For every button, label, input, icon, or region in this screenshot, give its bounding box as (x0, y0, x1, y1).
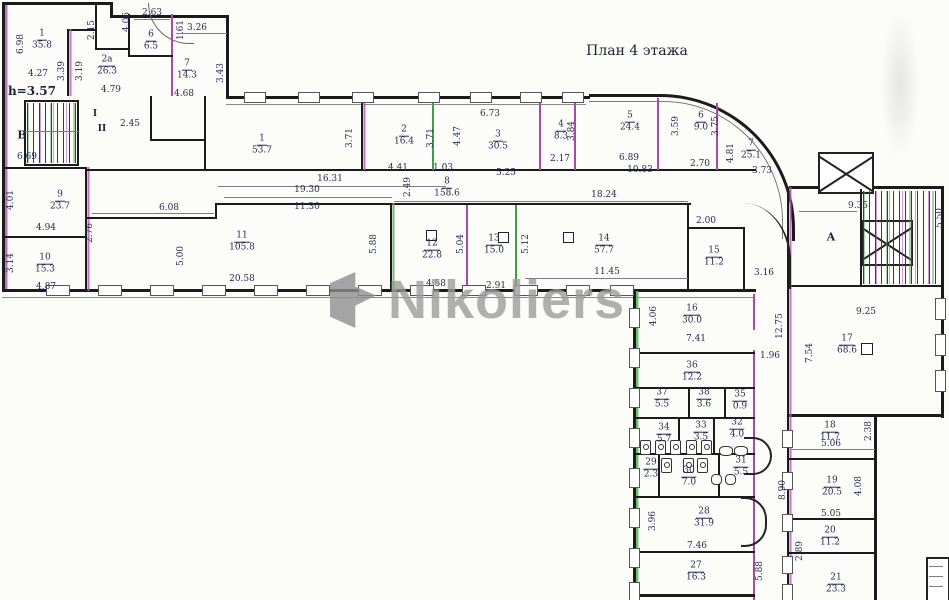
dimension-label: 4.01 (6, 190, 16, 210)
dimension-label: 5.05 (821, 509, 841, 519)
room-label-11: 11105.8 (229, 231, 255, 254)
room-label-18: 1811.7 (820, 421, 840, 444)
room-label-28: 2831.9 (694, 507, 714, 530)
dimension-label: 11.30 (294, 202, 320, 212)
dimension-label: 6.98 (16, 34, 26, 54)
room-label-21: 2123.3 (826, 573, 846, 596)
dimension-label: 4.08 (854, 476, 864, 496)
room-label-7: 714.3 (177, 59, 197, 82)
dimension-label: 5.25 (496, 168, 516, 178)
dimension-label: 5.12 (521, 234, 531, 254)
dimension-label: 3.14 (6, 253, 16, 273)
dimension-label: 1.61 (176, 20, 186, 40)
room-label-6: 66.5 (144, 30, 158, 53)
nikoliers-logo-icon (330, 272, 376, 328)
roman-label: I (93, 109, 97, 119)
dimension-label: 12.75 (775, 313, 785, 339)
room-label-8: 8158.6 (434, 177, 460, 200)
dimension-label: 3.71 (426, 128, 436, 148)
room-label-37: 375.5 (654, 388, 669, 411)
room-label-12: 1222.8 (422, 239, 442, 262)
dimension-label: 18.24 (591, 190, 617, 200)
room-label-27: 2716.3 (686, 561, 706, 584)
room-label-7: 725.1 (741, 139, 761, 162)
dimension-label: 20.58 (229, 274, 255, 284)
dimension-label: 9.35 (848, 201, 868, 211)
room-label-4: 48.3 (554, 120, 568, 143)
dimension-label: 7.41 (686, 334, 706, 344)
dimension-label: 7.46 (687, 541, 707, 551)
room-label-10: 1015.3 (35, 253, 55, 276)
dimension-label: 4.79 (101, 85, 121, 95)
dimension-label: 2.76 (85, 223, 95, 243)
dimension-label: 2.38 (864, 421, 874, 441)
dimension-label: 5.88 (369, 234, 379, 254)
dimension-label: 4.94 (36, 223, 56, 233)
letter-label: А (827, 231, 836, 244)
dimension-label: 5.00 (176, 246, 186, 266)
dimension-label: 5.88 (755, 561, 765, 581)
dimension-label: 1.96 (760, 351, 780, 361)
dimension-label: 2.45 (120, 119, 140, 129)
note-label: h=3.57 (8, 84, 56, 98)
dimension-label: 2.15 (87, 20, 97, 40)
room-label-31: 315.5 (733, 456, 748, 479)
room-label-2: 216.4 (394, 125, 414, 148)
room-label-2а: 2а26.3 (97, 55, 117, 78)
dimension-label: 5.04 (456, 234, 466, 254)
dimension-label: 2.89 (795, 541, 805, 561)
dimension-label: 3.16 (754, 268, 774, 278)
letter-label: В (17, 129, 26, 142)
dimension-label: 4.06 (122, 12, 132, 32)
dimension-label: 4.47 (453, 126, 463, 146)
dimension-label: 19.30 (294, 185, 320, 195)
dimension-label: 4.41 (388, 163, 408, 173)
room-label-35: 350.9 (732, 390, 747, 413)
dimension-label: 16.31 (317, 174, 343, 184)
room-label-30: 307.0 (681, 466, 696, 489)
dimension-label: 2.63 (142, 8, 162, 18)
dimension-label: 2.00 (696, 216, 716, 226)
room-label-17: 1768.6 (837, 334, 857, 357)
dimension-label: 4.81 (726, 143, 736, 163)
dimension-label: 4.87 (36, 282, 56, 292)
dimension-label: 7.54 (805, 343, 815, 363)
dimension-label: 8.90 (778, 480, 788, 500)
dimension-label: 3.19 (75, 61, 85, 81)
dimension-label: 3.71 (345, 128, 355, 148)
room-label-20: 2011.2 (820, 526, 840, 549)
dimension-label: 2.17 (550, 154, 570, 164)
room-label-14: 1457.7 (594, 234, 614, 257)
dimension-label: 6.89 (619, 153, 639, 163)
plan-title: План 4 этажа (586, 43, 688, 59)
dimension-label: 2.70 (690, 159, 710, 169)
room-label-15: 1511.2 (704, 246, 724, 269)
nikoliers-watermark: Nikoliers (330, 272, 625, 328)
dimension-label: 3.73 (752, 166, 772, 176)
dimension-label: 6.73 (480, 109, 500, 119)
dimension-label: 3.75 (711, 116, 721, 136)
dimension-label: 6.08 (159, 203, 179, 213)
dimension-label: 6.69 (17, 152, 37, 162)
dimension-label: 5.50 (935, 208, 945, 228)
dimension-label: 4.06 (649, 306, 659, 326)
dimension-label: 9.25 (856, 307, 876, 317)
dimension-label: 1.03 (433, 163, 453, 173)
dimension-label: 3.26 (187, 23, 207, 33)
dimension-label: 4.68 (174, 89, 194, 99)
watermark-text: Nikoliers (388, 273, 625, 327)
room-label-5: 524.4 (620, 111, 640, 134)
dimension-label: 10.83 (627, 165, 653, 175)
dimension-label: 3.59 (671, 116, 681, 136)
dimension-label: 2.49 (403, 177, 413, 197)
dimension-label: 3.39 (57, 61, 67, 81)
room-label-9: 923.7 (50, 190, 70, 213)
dimension-label: 3.43 (216, 63, 226, 83)
room-label-19: 1920.5 (822, 476, 842, 499)
room-label-1: 135.8 (32, 29, 52, 52)
roman-label: II (98, 124, 106, 134)
room-label-38: 383.6 (696, 388, 711, 411)
room-label-32: 324.0 (729, 418, 744, 441)
room-label-36: 3612.2 (682, 361, 702, 384)
room-label-1: 153.7 (252, 134, 272, 157)
room-label-6: 69.0 (694, 111, 708, 134)
dimension-label: 4.27 (28, 69, 48, 79)
dimension-label: 3.84 (567, 121, 577, 141)
room-label-34: 345.7 (656, 423, 671, 446)
room-label-16: 1630.0 (682, 304, 702, 327)
room-label-3: 330.5 (488, 130, 508, 153)
room-label-33: 333.5 (693, 421, 708, 444)
room-label-13: 1315.0 (484, 234, 504, 257)
dimension-label: 3.96 (648, 511, 658, 531)
floor-plan-scan: 6.984.272.153.393.194.792.634.061.613.26… (0, 0, 949, 600)
room-label-29: 292.3 (643, 458, 658, 481)
